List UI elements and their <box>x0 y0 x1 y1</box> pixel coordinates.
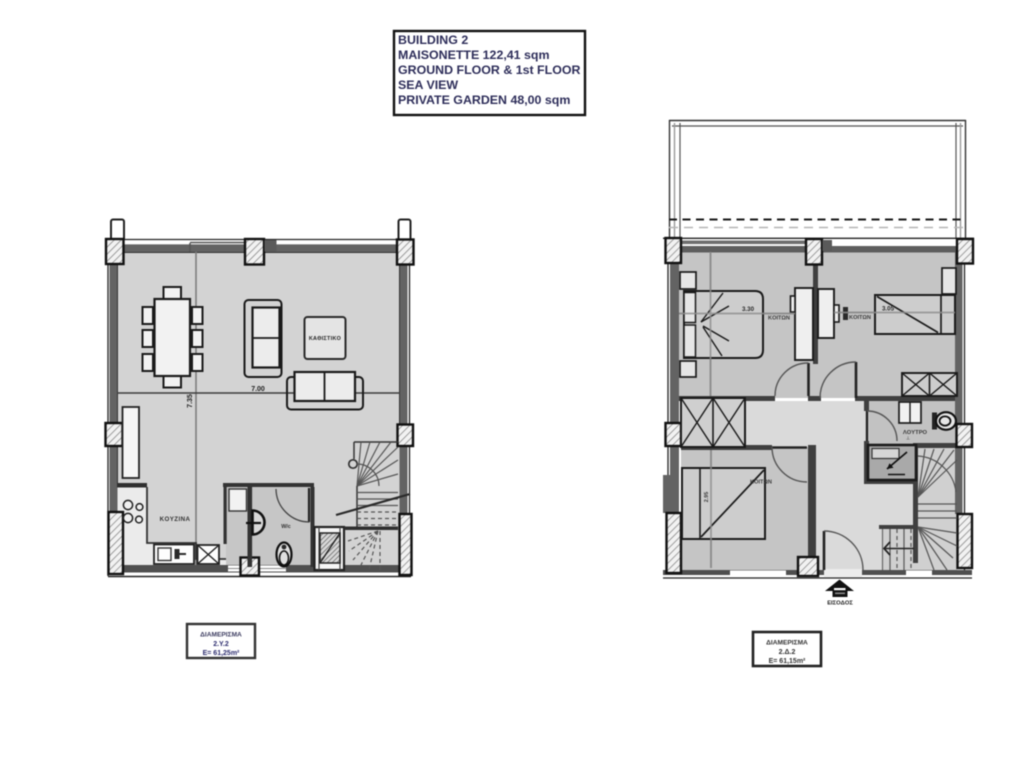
svg-text:KAΘIΣTIKO: KAΘIΣTIKO <box>309 336 341 342</box>
svg-text:7.00: 7.00 <box>251 386 265 393</box>
svg-text:W/c: W/c <box>281 524 291 530</box>
svg-text:ΛOYTPO: ΛOYTPO <box>903 430 928 436</box>
svg-text:KOITΩN: KOITΩN <box>768 316 790 322</box>
svg-text:ΔIAMEPIΣMA: ΔIAMEPIΣMA <box>200 632 242 639</box>
svg-text:ΔIAMEPIΣMA: ΔIAMEPIΣMA <box>766 640 808 647</box>
svg-text:E= 61,25m²: E= 61,25m² <box>203 650 240 657</box>
svg-text:KOYZINA: KOYZINA <box>160 516 191 523</box>
svg-text:KOITΩN: KOITΩN <box>849 315 871 321</box>
svg-text:SEA VIEW: SEA VIEW <box>398 78 458 92</box>
svg-text:E= 61,15m²: E= 61,15m² <box>769 658 806 665</box>
svg-text:7.35: 7.35 <box>187 394 194 408</box>
svg-text:2.95: 2.95 <box>704 492 710 503</box>
svg-text:EIΣOΔOΣ: EIΣOΔOΣ <box>827 601 853 607</box>
svg-text:BUILDING 2: BUILDING 2 <box>398 33 468 47</box>
svg-text:3.05: 3.05 <box>882 306 895 313</box>
svg-text:PRIVATE GARDEN 48,00 sqm: PRIVATE GARDEN 48,00 sqm <box>398 93 570 107</box>
svg-text:GROUND FLOOR & 1st FLOOR: GROUND FLOOR & 1st FLOOR <box>398 63 580 77</box>
svg-text:MAISONETTE 122,41 sqm: MAISONETTE 122,41 sqm <box>398 48 550 62</box>
svg-text:2.Δ.2: 2.Δ.2 <box>779 649 796 656</box>
svg-text:2.Y.2: 2.Y.2 <box>213 641 229 648</box>
svg-text:KOITΩN: KOITΩN <box>750 480 772 486</box>
svg-text:┴: ┴ <box>905 436 910 443</box>
svg-text:3.30: 3.30 <box>742 306 755 313</box>
